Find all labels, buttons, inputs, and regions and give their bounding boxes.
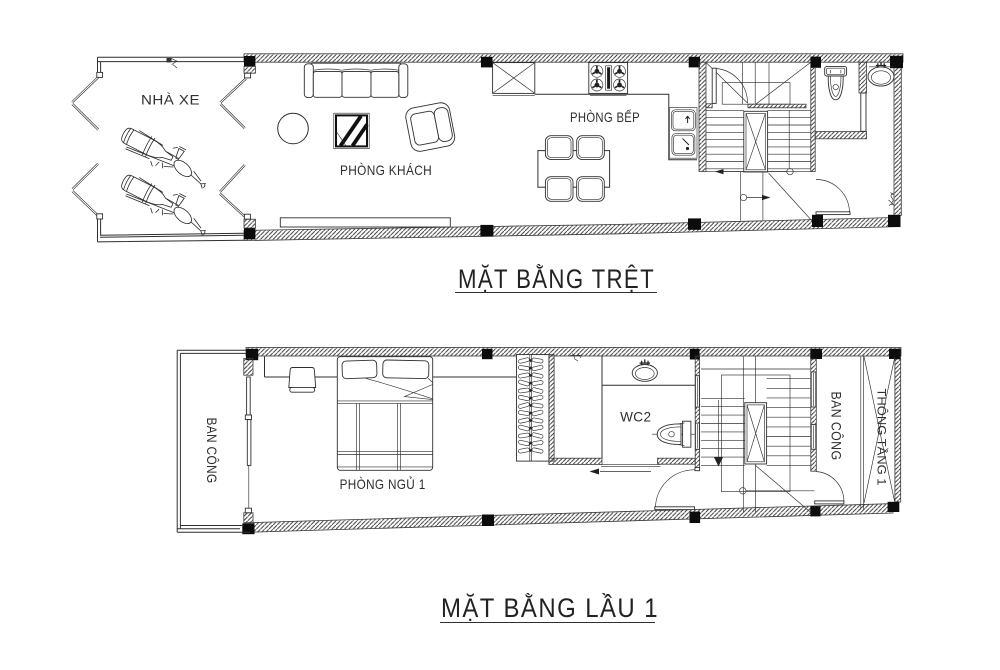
svg-text:MẶT BẰNG LẦU 1: MẶT BẰNG LẦU 1: [441, 593, 659, 623]
svg-text:BAN CÔNG: BAN CÔNG: [204, 418, 219, 484]
svg-text:PHÒNG NGỦ 1: PHÒNG NGỦ 1: [340, 477, 426, 492]
svg-text:BAN CÔNG: BAN CÔNG: [829, 392, 844, 461]
svg-text:MẶT BẰNG TRỆT: MẶT BẰNG TRỆT: [458, 264, 655, 294]
svg-text:PHÒNG BẾP: PHÒNG BẾP: [570, 110, 640, 125]
svg-text:PHÒNG KHÁCH: PHÒNG KHÁCH: [340, 163, 432, 178]
svg-text:NHÀ XE: NHÀ XE: [141, 93, 200, 108]
svg-text:WC2: WC2: [620, 410, 651, 425]
svg-text:THÔNG TẦNG 1: THÔNG TẦNG 1: [875, 389, 889, 486]
